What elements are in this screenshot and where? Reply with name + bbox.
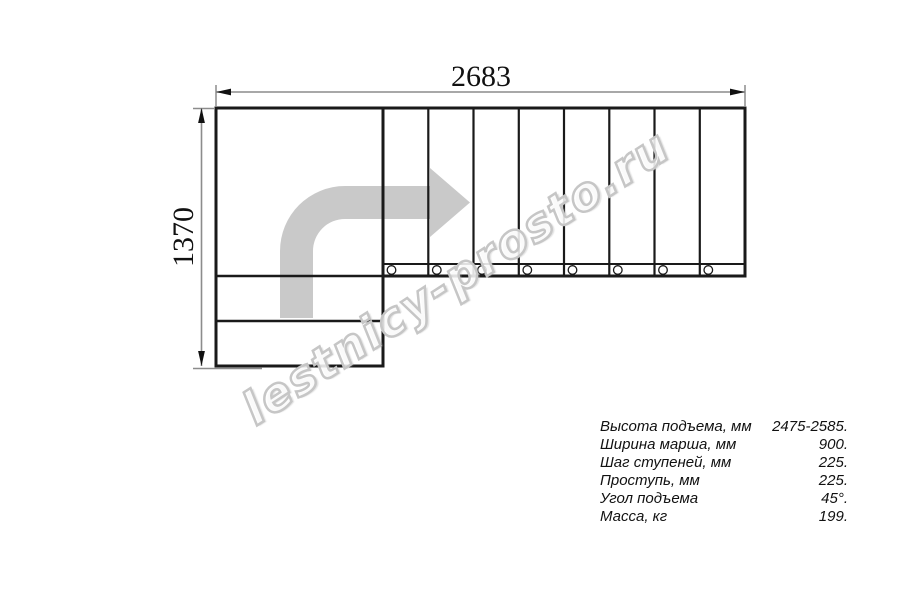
dim-arrow-right bbox=[730, 89, 745, 96]
dim-arrow-left bbox=[216, 89, 231, 96]
spec-value: 225. bbox=[819, 472, 848, 490]
spec-row-flight-width: Ширина марша, мм 900. bbox=[600, 436, 848, 454]
spec-row-tread-depth: Проступь, мм 225. bbox=[600, 472, 848, 490]
spec-value: 199. bbox=[819, 508, 848, 526]
dimension-height-label: 1370 bbox=[167, 207, 200, 267]
turn-right-arrow-icon bbox=[280, 168, 470, 318]
spec-row-climb-angle: Угол подъема 45°. bbox=[600, 490, 848, 508]
spec-label: Ширина марша, мм bbox=[600, 436, 736, 454]
spec-label: Высота подъема, мм bbox=[600, 418, 752, 436]
dim-arrow-up bbox=[198, 108, 205, 123]
dim-arrow-down bbox=[198, 351, 205, 366]
staircase-drawing-page: 2683 1370 lestnicy-prosto.ru Высота подъ… bbox=[0, 0, 900, 600]
tread-lines bbox=[428, 108, 700, 276]
specs-table: Высота подъема, мм 2475-2585. Ширина мар… bbox=[600, 418, 848, 526]
spec-row-lift-height: Высота подъема, мм 2475-2585. bbox=[600, 418, 848, 436]
fastener-circles bbox=[387, 266, 712, 275]
spec-value: 900. bbox=[819, 436, 848, 454]
dimension-top: 2683 bbox=[216, 60, 745, 106]
spec-label: Проступь, мм bbox=[600, 472, 700, 490]
spec-value: 2475-2585. bbox=[772, 418, 848, 436]
spec-row-step-pitch: Шаг ступеней, мм 225. bbox=[600, 454, 848, 472]
spec-label: Угол подъема bbox=[600, 490, 698, 508]
spec-row-mass: Масса, кг 199. bbox=[600, 508, 848, 526]
dimension-width-label: 2683 bbox=[451, 60, 511, 93]
spec-label: Масса, кг bbox=[600, 508, 667, 526]
spec-label: Шаг ступеней, мм bbox=[600, 454, 731, 472]
spec-value: 225. bbox=[819, 454, 848, 472]
spec-value: 45°. bbox=[821, 490, 848, 508]
